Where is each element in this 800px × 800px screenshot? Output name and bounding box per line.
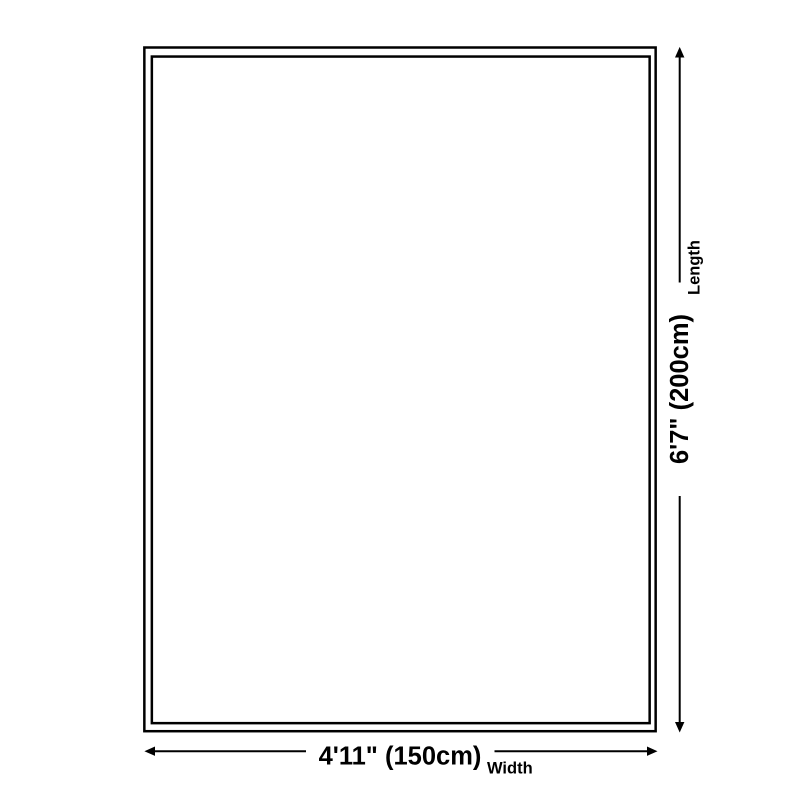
svg-text:4'11" (150cm): 4'11" (150cm) [319,743,482,771]
svg-text:Length: Length [685,240,703,295]
svg-text:Width: Width [487,760,533,778]
svg-text:6'7" (200cm): 6'7" (200cm) [666,314,694,464]
